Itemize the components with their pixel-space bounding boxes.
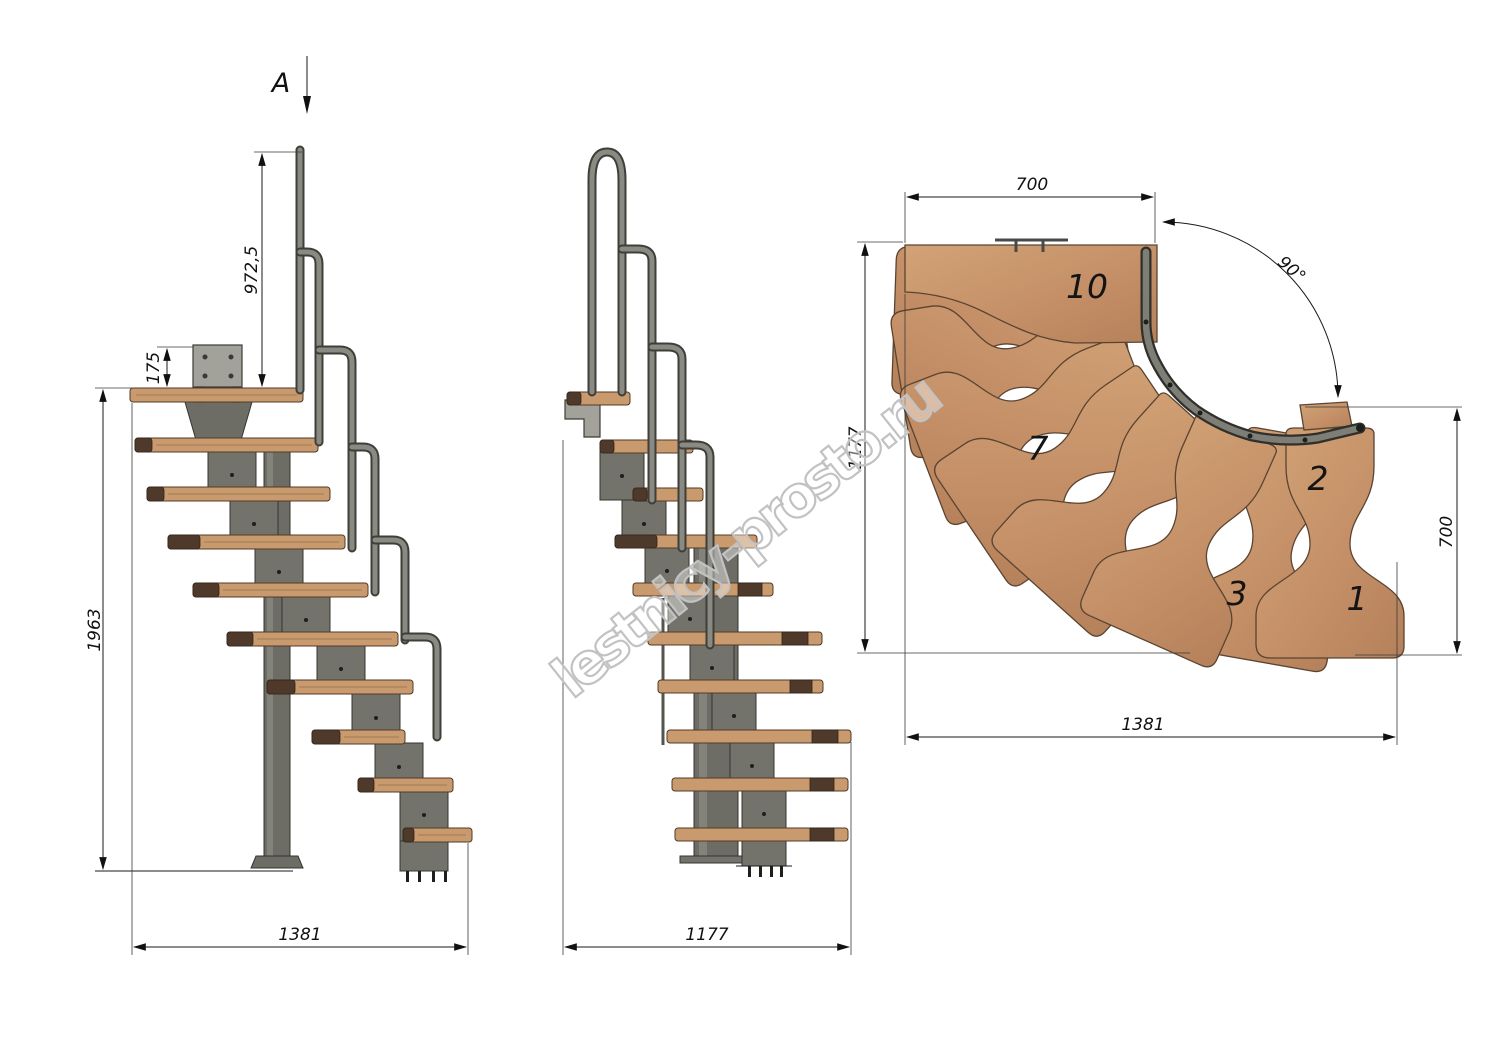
tread bbox=[675, 828, 848, 841]
side-foot-module bbox=[400, 841, 448, 882]
svg-text:175: 175 bbox=[144, 352, 164, 384]
tread bbox=[658, 680, 823, 693]
dim-total-height: 1963 bbox=[85, 388, 132, 869]
staircase-technical-drawing: A bbox=[0, 0, 1500, 1061]
front-wall-bracket bbox=[565, 400, 600, 437]
side-module-chain bbox=[208, 451, 448, 882]
svg-text:90°: 90° bbox=[1273, 252, 1309, 287]
tread bbox=[227, 632, 398, 646]
plan-tread-label-2: 2 bbox=[1308, 459, 1329, 498]
plan-tread-label-3: 3 bbox=[1227, 574, 1248, 613]
tread bbox=[312, 730, 405, 744]
watermark-text: lestnicy-prosto.ru bbox=[540, 365, 951, 711]
dim-handrail-height: 972,5 bbox=[242, 152, 302, 386]
tread bbox=[193, 583, 368, 597]
tread bbox=[135, 438, 318, 452]
svg-text:1381: 1381 bbox=[1121, 715, 1164, 735]
svg-text:700: 700 bbox=[1437, 516, 1457, 548]
dim-bracket-height: 175 bbox=[144, 347, 193, 386]
section-arrow-a: A bbox=[270, 56, 311, 114]
section-label: A bbox=[270, 68, 290, 99]
svg-text:700: 700 bbox=[1016, 175, 1048, 195]
tread bbox=[130, 388, 303, 402]
plan-tread-label-7: 7 bbox=[1028, 429, 1049, 468]
column-base-flare bbox=[251, 856, 303, 868]
tread bbox=[168, 535, 345, 549]
dim-plan-top-width: 700 bbox=[905, 175, 1155, 243]
svg-text:1177: 1177 bbox=[685, 925, 728, 945]
column-collar bbox=[185, 402, 252, 440]
tread bbox=[267, 680, 413, 694]
tread bbox=[633, 488, 703, 501]
svg-text:1381: 1381 bbox=[278, 925, 321, 945]
plan-tread-label-10: 10 bbox=[1066, 267, 1108, 306]
section-arrow-head bbox=[303, 96, 311, 114]
technical-drawing-page: A bbox=[0, 0, 1500, 1061]
tread bbox=[358, 778, 453, 792]
svg-text:1963: 1963 bbox=[85, 608, 105, 651]
tread bbox=[403, 828, 472, 842]
plan-step-sliver bbox=[1300, 402, 1352, 430]
svg-text:972,5: 972,5 bbox=[242, 246, 262, 295]
tread bbox=[667, 730, 851, 743]
dim-turn-angle: 90° bbox=[1163, 222, 1338, 397]
tread bbox=[147, 487, 330, 501]
tread bbox=[672, 778, 848, 791]
plan-view: 10 7 2 3 1 700 90° 1177 700 bbox=[846, 175, 1462, 745]
side-view: A bbox=[85, 56, 472, 955]
plan-tread-label-1: 1 bbox=[1347, 579, 1368, 618]
dim-side-length: 1381 bbox=[132, 403, 468, 955]
